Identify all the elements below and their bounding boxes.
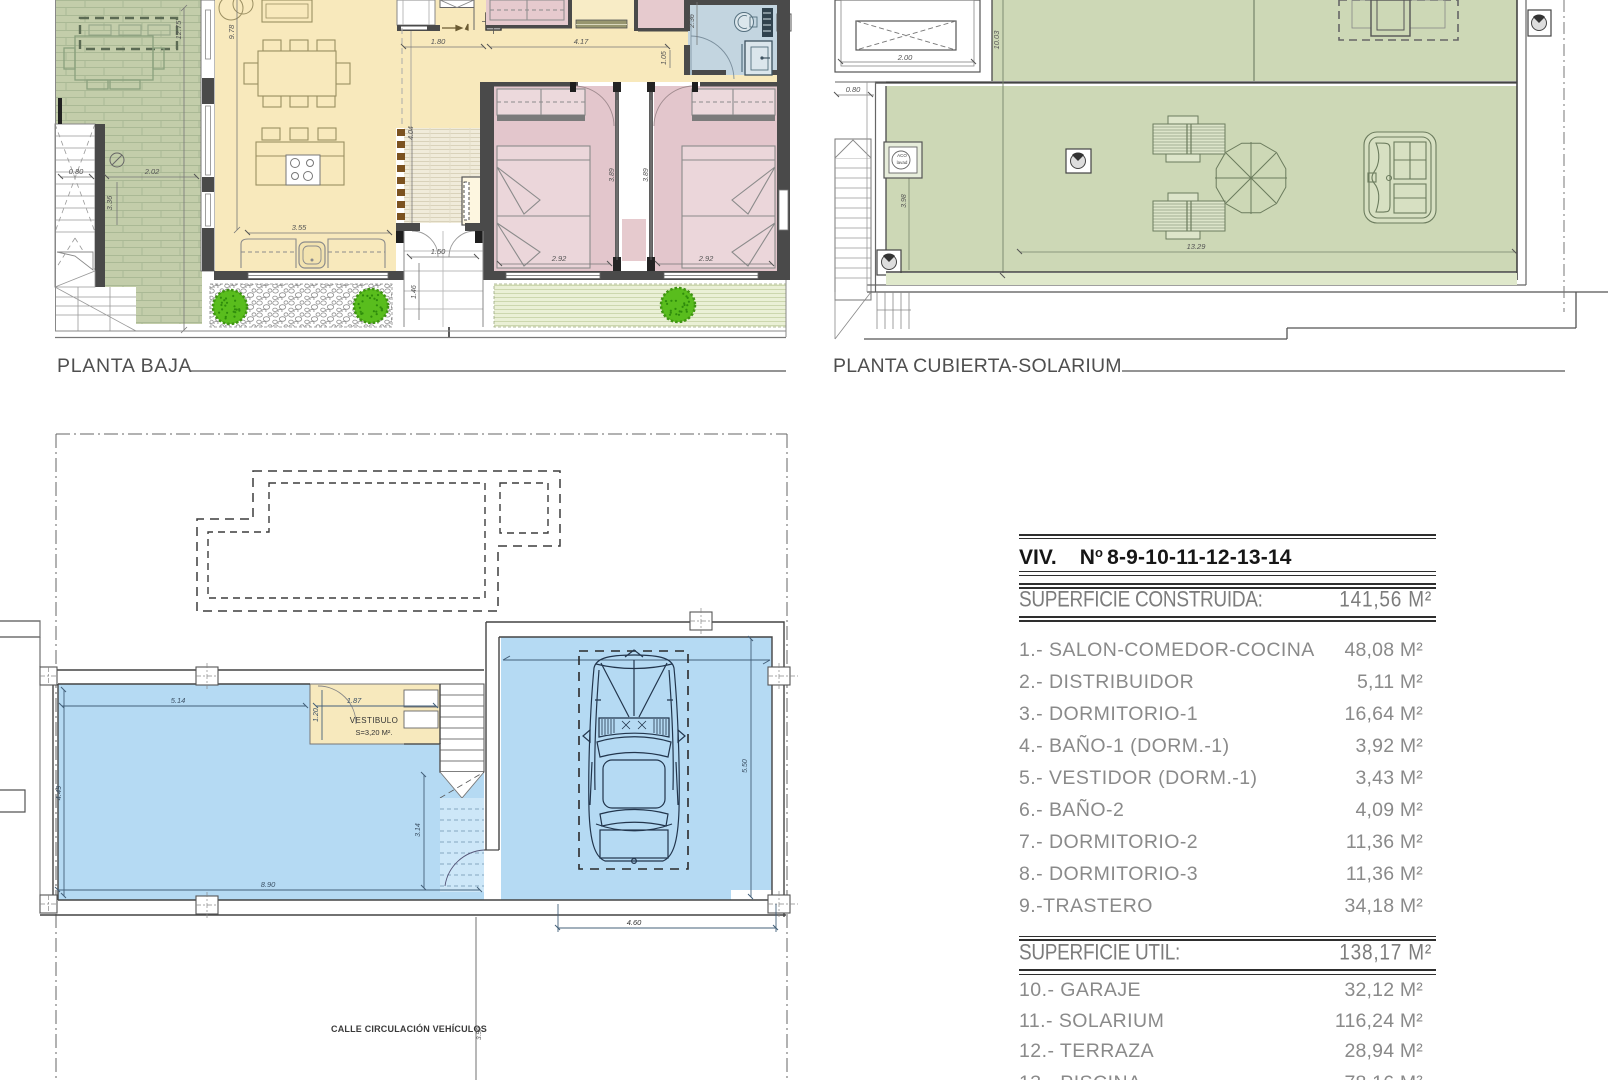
svg-text:8.90: 8.90	[261, 880, 276, 889]
svg-text:2.92: 2.92	[551, 254, 567, 263]
svg-text:1.05: 1.05	[661, 51, 668, 65]
svg-text:4.60: 4.60	[627, 918, 642, 927]
svg-text:3.89: 3.89	[643, 168, 650, 182]
svg-text:5.50: 5.50	[742, 759, 749, 773]
svg-text:4.04: 4.04	[408, 126, 415, 140]
svg-text:2.92: 2.92	[698, 254, 714, 263]
svg-text:3.55: 3.55	[292, 223, 307, 232]
svg-text:2.36: 2.36	[689, 14, 696, 29]
svg-text:1.20: 1.20	[313, 708, 320, 722]
svg-text:3.50: 3.50	[476, 1027, 483, 1040]
svg-text:CALLE CIRCULACIÓN VEHÍCULOS: CALLE CIRCULACIÓN VEHÍCULOS	[331, 1023, 487, 1034]
svg-text:12.75: 12.75	[174, 20, 183, 40]
svg-text:9.78: 9.78	[227, 24, 236, 39]
svg-text:1.50: 1.50	[431, 247, 446, 256]
svg-text:1.80: 1.80	[431, 37, 446, 46]
svg-text:3.14: 3.14	[415, 823, 422, 837]
svg-text:0.80: 0.80	[846, 85, 861, 94]
svg-text:PLANTA BAJA: PLANTA BAJA	[57, 355, 192, 377]
svg-text:3.36: 3.36	[105, 195, 114, 210]
svg-text:1.46: 1.46	[411, 285, 418, 299]
svg-text:VESTIBULO: VESTIBULO	[350, 716, 399, 725]
svg-text:lavad: lavad	[897, 160, 908, 165]
svg-text:1.87: 1.87	[347, 696, 362, 705]
svg-text:3.98: 3.98	[901, 194, 908, 208]
svg-text:S=3,20 M².: S=3,20 M².	[356, 728, 393, 737]
svg-text:5.14: 5.14	[171, 696, 186, 705]
svg-text:3.89: 3.89	[609, 168, 616, 182]
svg-text:0.80: 0.80	[69, 167, 84, 176]
svg-text:2.00: 2.00	[897, 53, 913, 62]
svg-text:ACO: ACO	[897, 153, 907, 158]
svg-text:10.03: 10.03	[992, 30, 1001, 50]
svg-text:2.02: 2.02	[144, 167, 160, 176]
svg-text:4.49: 4.49	[54, 785, 63, 800]
svg-text:4.17: 4.17	[574, 37, 589, 46]
